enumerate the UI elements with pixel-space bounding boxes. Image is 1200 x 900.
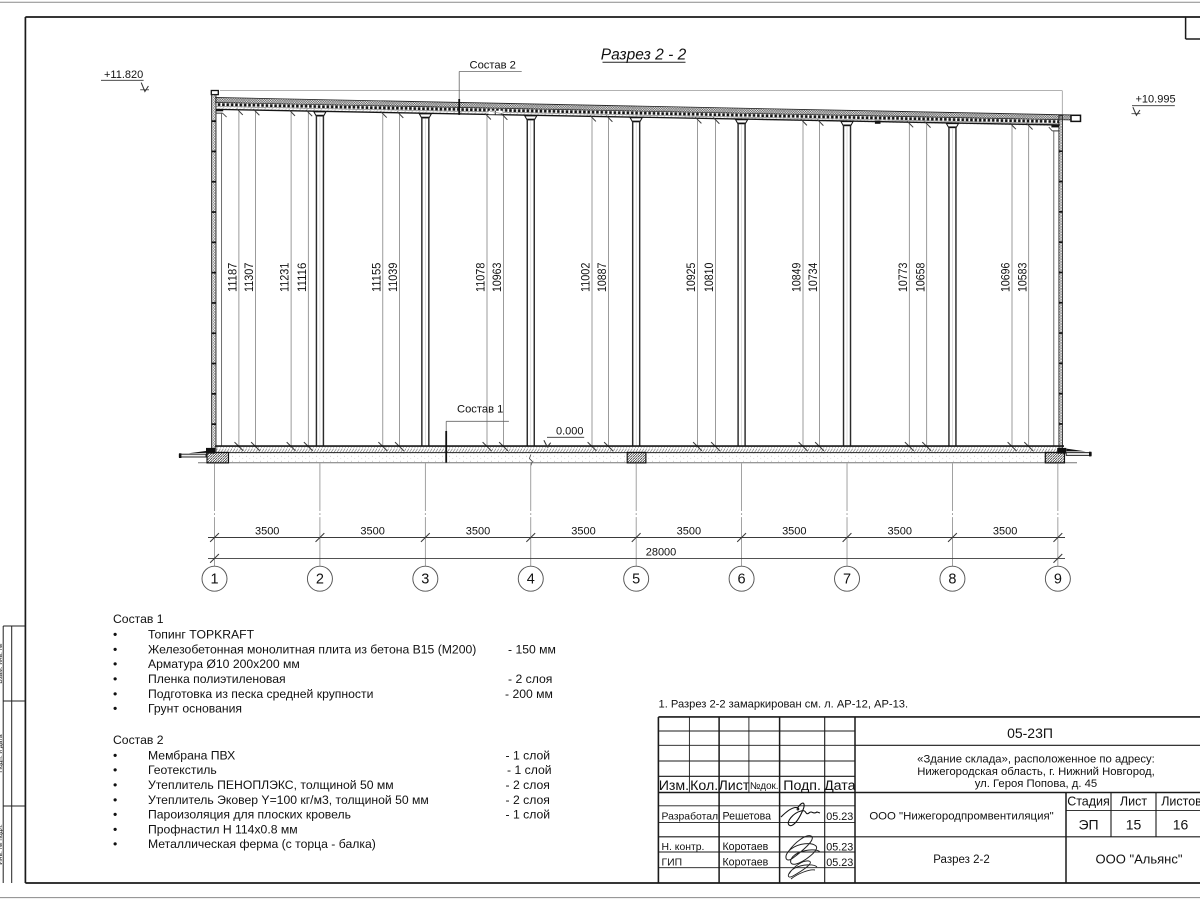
svg-text:•: • <box>113 837 117 851</box>
svg-text:- 1 слой: - 1 слой <box>506 748 551 762</box>
svg-text:9: 9 <box>1054 572 1062 588</box>
svg-text:05.23: 05.23 <box>826 841 853 853</box>
svg-text:10963: 10963 <box>490 262 504 291</box>
svg-text:Лист: Лист <box>718 778 749 794</box>
svg-text:11039: 11039 <box>386 262 400 291</box>
svg-text:•: • <box>113 748 117 762</box>
svg-text:0.000: 0.000 <box>556 426 584 438</box>
svg-text:Разработал: Разработал <box>662 811 719 823</box>
svg-text:Профнастил Н 114х0.8 мм: Профнастил Н 114х0.8 мм <box>148 822 298 836</box>
svg-text:Топинг TOPKRAFT: Топинг TOPKRAFT <box>148 628 255 642</box>
svg-text:Геотекстиль: Геотекстиль <box>148 763 217 777</box>
svg-text:- 1 слой: - 1 слой <box>507 763 552 777</box>
svg-text:Грунт основания: Грунт основания <box>148 702 242 716</box>
svg-text:«Здание склада», расположенное: «Здание склада», расположенное по адресу… <box>917 754 1155 766</box>
svg-text:+10.995: +10.995 <box>1136 94 1176 106</box>
svg-text:ул. Героя Попова, д. 45: ул. Героя Попова, д. 45 <box>975 778 1097 790</box>
svg-text:3500: 3500 <box>782 525 806 537</box>
svg-text:3500: 3500 <box>887 525 911 537</box>
svg-text:Состав 1: Состав 1 <box>113 612 164 626</box>
svg-text:•: • <box>113 657 117 671</box>
svg-text:•: • <box>113 672 117 686</box>
svg-text:•: • <box>113 702 117 716</box>
svg-text:11002: 11002 <box>579 262 593 291</box>
svg-text:Нижегородская область, г. Нижн: Нижегородская область, г. Нижний Новгоро… <box>917 766 1155 778</box>
svg-text:3: 3 <box>421 572 429 588</box>
svg-text:Коротаев: Коротаев <box>723 856 769 868</box>
svg-text:+11.820: +11.820 <box>104 69 143 81</box>
svg-text:•: • <box>113 808 117 822</box>
svg-text:Изм.: Изм. <box>659 778 689 794</box>
svg-text:Коротаев: Коротаев <box>723 841 769 853</box>
svg-text:10734: 10734 <box>806 262 820 291</box>
svg-text:ГИП: ГИП <box>662 857 683 868</box>
svg-text:Кол.: Кол. <box>690 778 718 794</box>
svg-text:- 150 мм: - 150 мм <box>508 642 556 656</box>
svg-text:Взам. инв. №: Взам. инв. № <box>0 643 4 683</box>
svg-text:28000: 28000 <box>646 546 677 558</box>
svg-text:Пленка полиэтиленовая: Пленка полиэтиленовая <box>148 672 286 686</box>
svg-text:Дата: Дата <box>824 778 856 794</box>
svg-text:Пароизоляция для плоских крове: Пароизоляция для плоских кровель <box>148 808 351 822</box>
svg-text:Металлическая ферма (с торца -: Металлическая ферма (с торца - балка) <box>148 837 376 851</box>
svg-text:Состав 1: Состав 1 <box>457 404 503 416</box>
svg-text:- 1 слой: - 1 слой <box>506 808 551 822</box>
svg-text:1: 1 <box>210 572 218 588</box>
svg-text:10887: 10887 <box>595 262 609 291</box>
svg-text:15: 15 <box>1126 817 1142 833</box>
svg-text:3500: 3500 <box>466 525 490 537</box>
svg-text:ЭП: ЭП <box>1078 817 1098 833</box>
svg-text:Инв. № подл.: Инв. № подл. <box>0 824 4 865</box>
svg-text:ООО "Альянс": ООО "Альянс" <box>1096 852 1183 867</box>
svg-text:•: • <box>113 687 117 701</box>
svg-text:3500: 3500 <box>571 525 595 537</box>
svg-text:5: 5 <box>632 572 640 588</box>
svg-text:Н. контр.: Н. контр. <box>662 842 705 853</box>
svg-text:Состав 2: Состав 2 <box>470 60 516 72</box>
svg-text:10925: 10925 <box>684 262 698 291</box>
svg-text:3500: 3500 <box>677 525 701 537</box>
svg-text:10583: 10583 <box>1015 262 1029 291</box>
svg-text:6: 6 <box>738 572 746 588</box>
svg-text:11187: 11187 <box>226 262 240 291</box>
svg-text:10773: 10773 <box>896 262 910 291</box>
svg-text:№док.: №док. <box>750 781 779 792</box>
svg-text:Мембрана ПВХ: Мембрана ПВХ <box>148 748 235 762</box>
svg-text:11231: 11231 <box>278 262 292 291</box>
svg-text:- 2 слоя: - 2 слоя <box>508 672 552 686</box>
svg-text:•: • <box>113 628 117 642</box>
svg-text:05.23: 05.23 <box>826 811 853 823</box>
svg-text:11116: 11116 <box>295 262 309 291</box>
svg-text:Утеплитель Эковер Y=100 кг/м3,: Утеплитель Эковер Y=100 кг/м3, толщиной … <box>148 793 429 807</box>
svg-text:- 2 слоя: - 2 слоя <box>506 778 550 792</box>
svg-text:2: 2 <box>316 572 324 588</box>
svg-text:Стадия: Стадия <box>1067 795 1110 809</box>
svg-text:Разрез 2-2: Разрез 2-2 <box>933 854 989 866</box>
svg-text:Состав 2: Состав 2 <box>113 733 164 747</box>
svg-text:ООО "Нижегородпромвентиляция": ООО "Нижегородпромвентиляция" <box>869 811 1053 823</box>
svg-text:•: • <box>113 822 117 836</box>
svg-text:1. Разрез 2-2 замаркирован см.: 1. Разрез 2-2 замаркирован см. л. АР-12,… <box>659 699 909 711</box>
svg-text:05-23П: 05-23П <box>1007 725 1053 741</box>
svg-text:3500: 3500 <box>993 525 1017 537</box>
svg-text:•: • <box>113 778 117 792</box>
svg-text:•: • <box>113 642 117 656</box>
svg-text:Лист: Лист <box>1120 795 1147 809</box>
svg-text:Подп.: Подп. <box>783 778 821 794</box>
svg-text:Железобетонная монолитная плит: Железобетонная монолитная плита из бетон… <box>148 642 476 656</box>
svg-text:Подп. и дата: Подп. и дата <box>0 734 4 773</box>
svg-text:4: 4 <box>527 572 535 588</box>
svg-text:Утеплитель ПЕНОПЛЭКС, толщиной: Утеплитель ПЕНОПЛЭКС, толщиной 50 мм <box>148 778 394 792</box>
svg-text:7: 7 <box>843 572 851 588</box>
svg-text:10658: 10658 <box>913 262 927 291</box>
svg-text:10696: 10696 <box>999 262 1013 291</box>
svg-text:Листов: Листов <box>1161 795 1200 809</box>
svg-text:•: • <box>113 763 117 777</box>
svg-text:10810: 10810 <box>702 262 716 291</box>
svg-text:Подготовка из песка средней кр: Подготовка из песка средней крупности <box>148 687 373 701</box>
svg-text:- 2 слоя: - 2 слоя <box>506 793 550 807</box>
svg-text:Решетова: Решетова <box>723 811 772 823</box>
svg-text:05.23: 05.23 <box>826 857 853 869</box>
svg-text:11078: 11078 <box>474 262 488 291</box>
svg-text:10849: 10849 <box>790 262 804 291</box>
svg-text:11155: 11155 <box>369 262 383 291</box>
svg-text:11307: 11307 <box>242 262 256 291</box>
svg-text:3500: 3500 <box>255 525 279 537</box>
svg-text:Арматура Ø10 200х200 мм: Арматура Ø10 200х200 мм <box>148 657 300 671</box>
svg-text:8: 8 <box>948 572 956 588</box>
svg-text:16: 16 <box>1173 817 1189 833</box>
svg-text:•: • <box>113 793 117 807</box>
svg-text:3500: 3500 <box>360 525 384 537</box>
svg-text:Разрез 2 - 2: Разрез 2 - 2 <box>601 47 687 64</box>
svg-text:- 200 мм: - 200 мм <box>505 687 553 701</box>
